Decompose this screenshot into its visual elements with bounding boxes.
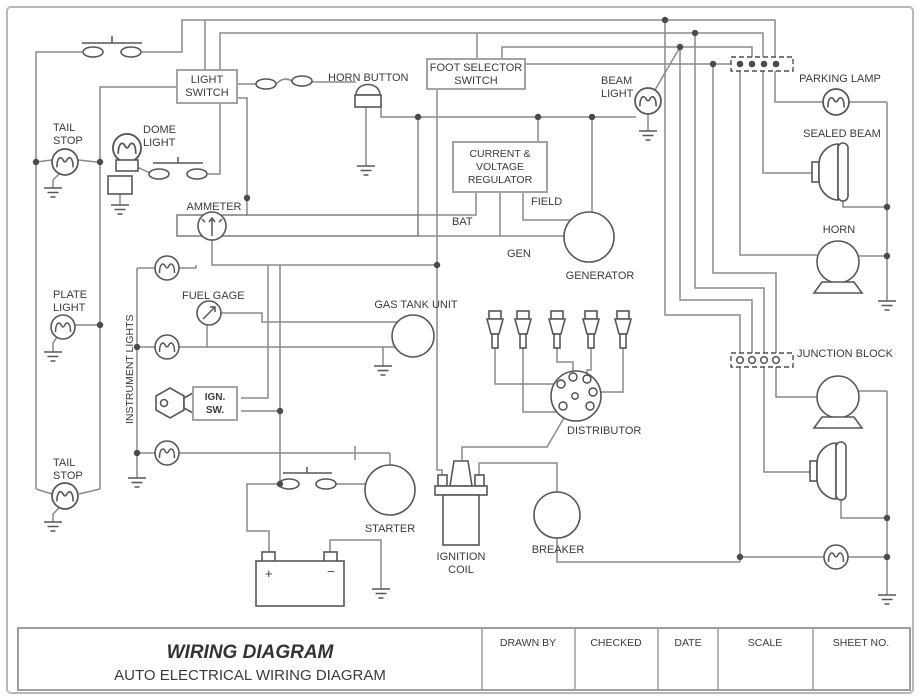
foot-selector-label-2: SWITCH — [454, 75, 497, 87]
title-col-drawn-by: DRAWN BY — [500, 637, 556, 649]
instrument-lights-label: INSTRUMENT LIGHTS — [124, 315, 136, 424]
breaker-label: BREAKER — [532, 544, 585, 556]
dome-light-switch-symbol — [149, 157, 207, 179]
title-block: WIRING DIAGRAM AUTO ELECTRICAL WIRING DI… — [18, 628, 910, 690]
gas-tank-unit-symbol — [374, 315, 434, 375]
tail-stop-lamp-top — [44, 149, 78, 197]
wiring-diagram-page: TAIL STOP DOME LIGHT LIGHT SWITCH HORN B… — [0, 0, 920, 700]
title-block-subtitle: AUTO ELECTRICAL WIRING DIAGRAM — [114, 667, 386, 684]
title-block-title: WIRING DIAGRAM — [167, 642, 335, 663]
tail-stop-bottom-label-1: TAIL — [53, 457, 75, 469]
breaker-symbol — [534, 492, 580, 538]
bat-label: BAT — [452, 216, 473, 228]
starter-symbol — [365, 465, 415, 515]
generator-symbol — [564, 212, 614, 262]
battery-minus-sign: − — [327, 564, 335, 579]
fuel-gage-symbol — [197, 301, 221, 325]
ign-sw-label-2: SW. — [206, 405, 225, 416]
headlamp-switch-symbol — [82, 36, 142, 57]
ammeter-symbol — [198, 212, 226, 240]
beam-light-label-1: BEAM — [601, 75, 632, 87]
horn-label: HORN — [823, 224, 855, 236]
page-border — [7, 7, 913, 693]
foot-selector-label-1: FOOT SELECTOR — [430, 62, 523, 74]
plate-light-symbol — [44, 315, 75, 361]
field-label: FIELD — [531, 196, 562, 208]
horn-button-symbol — [355, 85, 381, 176]
battery-symbol — [256, 552, 390, 606]
title-col-date: DATE — [674, 637, 701, 649]
tail-stop-lamp-bottom — [44, 483, 78, 531]
gen-label: GEN — [507, 248, 531, 260]
parking-lamp-label: PARKING LAMP — [799, 73, 881, 85]
generator-label: GENERATOR — [566, 270, 635, 282]
distributor-symbol — [551, 371, 601, 421]
sealed-beam-symbol-top — [812, 143, 848, 201]
regulator-label-1: CURRENT & — [469, 148, 530, 160]
starter-label: STARTER — [365, 523, 415, 535]
beam-light-label-2: LIGHT — [601, 88, 634, 100]
dome-light-label-1: DOME — [143, 124, 176, 136]
tail-stop-top-label-2: STOP — [53, 135, 83, 147]
regulator-label-3: REGULATOR — [468, 174, 533, 186]
light-switch-label-2: SWITCH — [185, 87, 228, 99]
wiring-diagram-canvas: TAIL STOP DOME LIGHT LIGHT SWITCH HORN B… — [0, 0, 920, 700]
sealed-beam-label: SEALED BEAM — [803, 128, 881, 140]
spark-plugs — [487, 311, 631, 348]
dome-light-symbol — [108, 134, 141, 214]
starter-switch-symbol — [279, 467, 336, 489]
ign-sw-label-1: IGN. — [205, 392, 226, 403]
circuit-breaker-symbol — [256, 76, 312, 89]
battery-plus-sign: + — [265, 566, 273, 581]
horn-symbol-top — [814, 241, 896, 310]
title-col-checked: CHECKED — [590, 637, 642, 649]
fuel-gage-label: FUEL GAGE — [182, 290, 245, 302]
junction-block-top — [731, 57, 793, 71]
plate-light-label-2: LIGHT — [53, 302, 86, 314]
ammeter-label: AMMETER — [187, 201, 242, 213]
horn-symbol-lower — [814, 376, 862, 428]
parking-lamp-symbol — [823, 89, 849, 115]
ignition-coil-label-1: IGNITION — [437, 551, 486, 563]
distributor-label: DISTRIBUTOR — [567, 425, 641, 437]
tail-stop-bottom-label-2: STOP — [53, 470, 83, 482]
title-col-scale: SCALE — [748, 637, 782, 649]
horn-button-label: HORN BUTTON — [328, 72, 409, 84]
title-col-sheet-no: SHEET NO. — [833, 637, 889, 649]
beam-light-symbol — [635, 88, 661, 140]
sealed-beam-symbol-lower — [810, 442, 846, 500]
gas-tank-unit-label: GAS TANK UNIT — [374, 299, 458, 311]
regulator-label-2: VOLTAGE — [476, 161, 524, 173]
tail-stop-top-label-1: TAIL — [53, 122, 75, 134]
ignition-coil-label-2: COIL — [448, 564, 474, 576]
dome-light-label-2: LIGHT — [143, 137, 176, 149]
plate-light-label-1: PLATE — [53, 289, 87, 301]
junction-block-lower — [731, 353, 793, 367]
rear-lamp-symbol — [824, 545, 896, 604]
light-switch-label-1: LIGHT — [191, 74, 224, 86]
junction-block-label: JUNCTION BLOCK — [797, 348, 894, 360]
